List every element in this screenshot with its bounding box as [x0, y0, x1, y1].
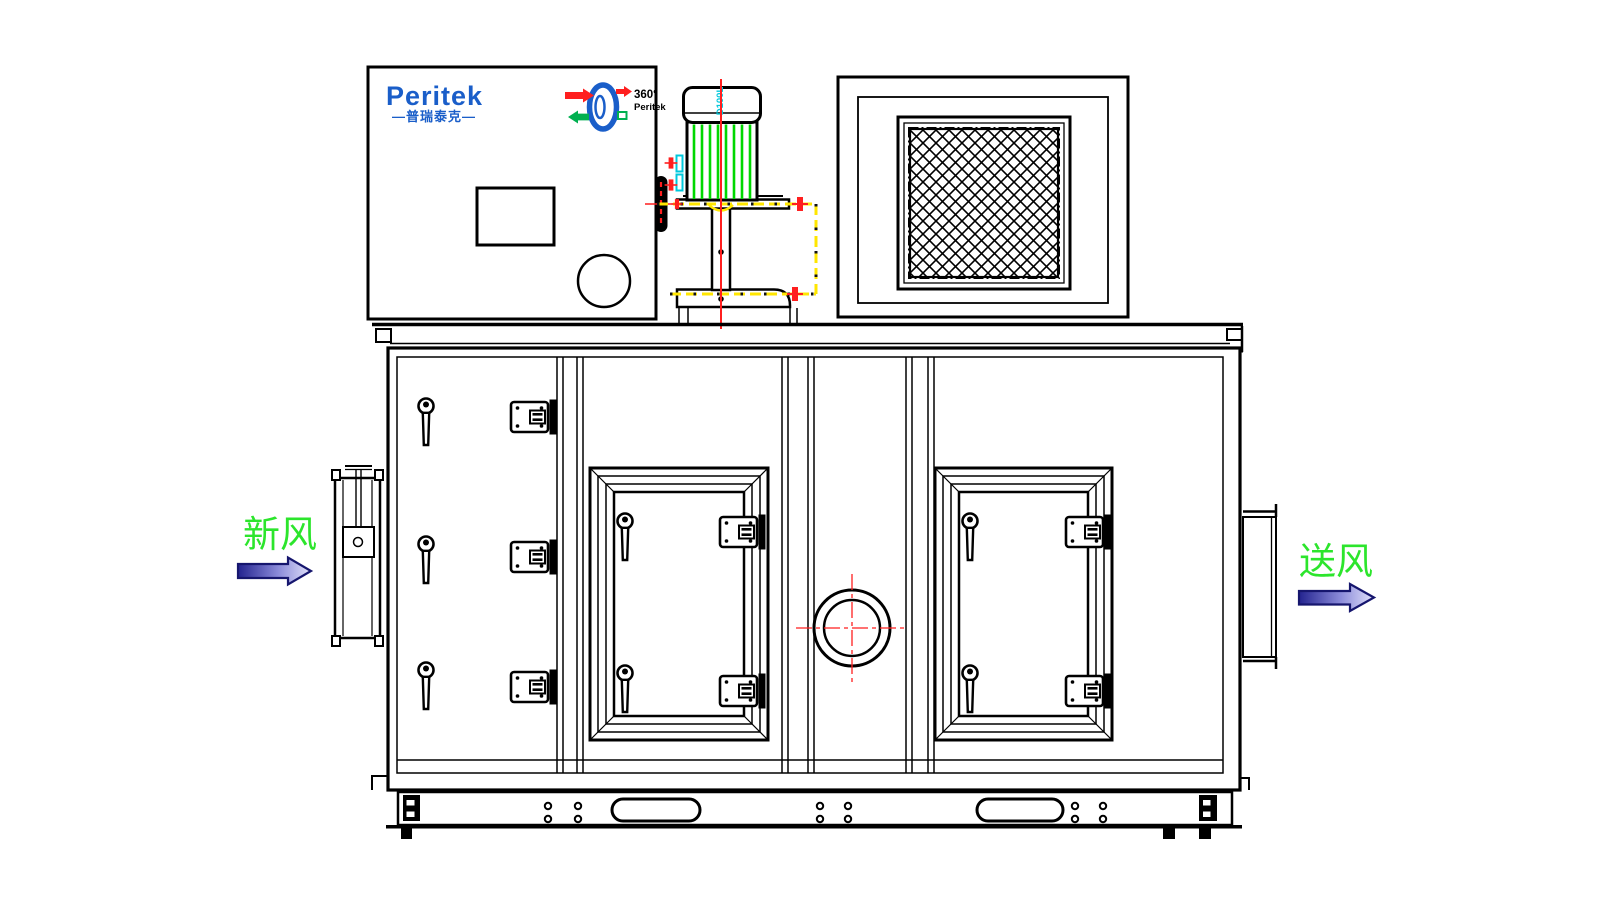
bolt-marker-icon: [792, 197, 808, 211]
forklift-slot: [612, 799, 700, 821]
supply-air-label: 送风: [1299, 541, 1373, 582]
door-latch-icon: [1066, 515, 1112, 550]
peritek-control-panel: Peritek —普瑞泰克— 360° Peritek: [368, 67, 666, 319]
fresh-air-label: 新风: [243, 514, 317, 555]
inspection-panel: [477, 188, 554, 245]
motor-assembly: D100L: [645, 79, 816, 329]
drawing-canvas: Peritek —普瑞泰克— 360° Peritek: [0, 0, 1613, 897]
brand-logo: Peritek: [386, 81, 483, 111]
door-latch-icon: [511, 670, 557, 705]
filter-box: [838, 77, 1128, 317]
rotor-degrees-label: 360°: [634, 89, 658, 101]
fresh-air-arrow-icon: [238, 558, 311, 585]
base-frame: [386, 792, 1242, 839]
forklift-slot: [977, 799, 1063, 821]
motor-support-plate: [677, 290, 790, 308]
corner-bracket: [1199, 795, 1217, 821]
base-foot: [1199, 826, 1211, 839]
inlet-damper: [332, 466, 383, 646]
base-foot: [1163, 826, 1175, 839]
cabinet: [372, 348, 1249, 790]
bolt-marker-icon: [665, 157, 678, 168]
door-latch-icon: [511, 400, 557, 435]
access-door-right: [935, 468, 1112, 740]
door-latch-icon: [720, 515, 766, 550]
rotor-brand-label: Peritek: [634, 102, 666, 113]
door-latch-icon: [1066, 674, 1112, 709]
sight-glass: [578, 255, 630, 307]
outlet-flange: [1243, 504, 1276, 669]
corner-bracket: [403, 795, 420, 821]
brand-logo-sub: —普瑞泰克—: [392, 109, 476, 124]
datum-lines: [657, 204, 816, 294]
door-latch-icon: [720, 674, 766, 709]
door-latch-icon: [511, 540, 557, 575]
access-door-middle: [590, 468, 768, 740]
technical-drawing: Peritek —普瑞泰克— 360° Peritek: [0, 0, 1613, 897]
base-foot: [401, 826, 412, 839]
mesh-grille: [910, 129, 1058, 277]
supply-air-arrow-icon: [1299, 584, 1374, 611]
